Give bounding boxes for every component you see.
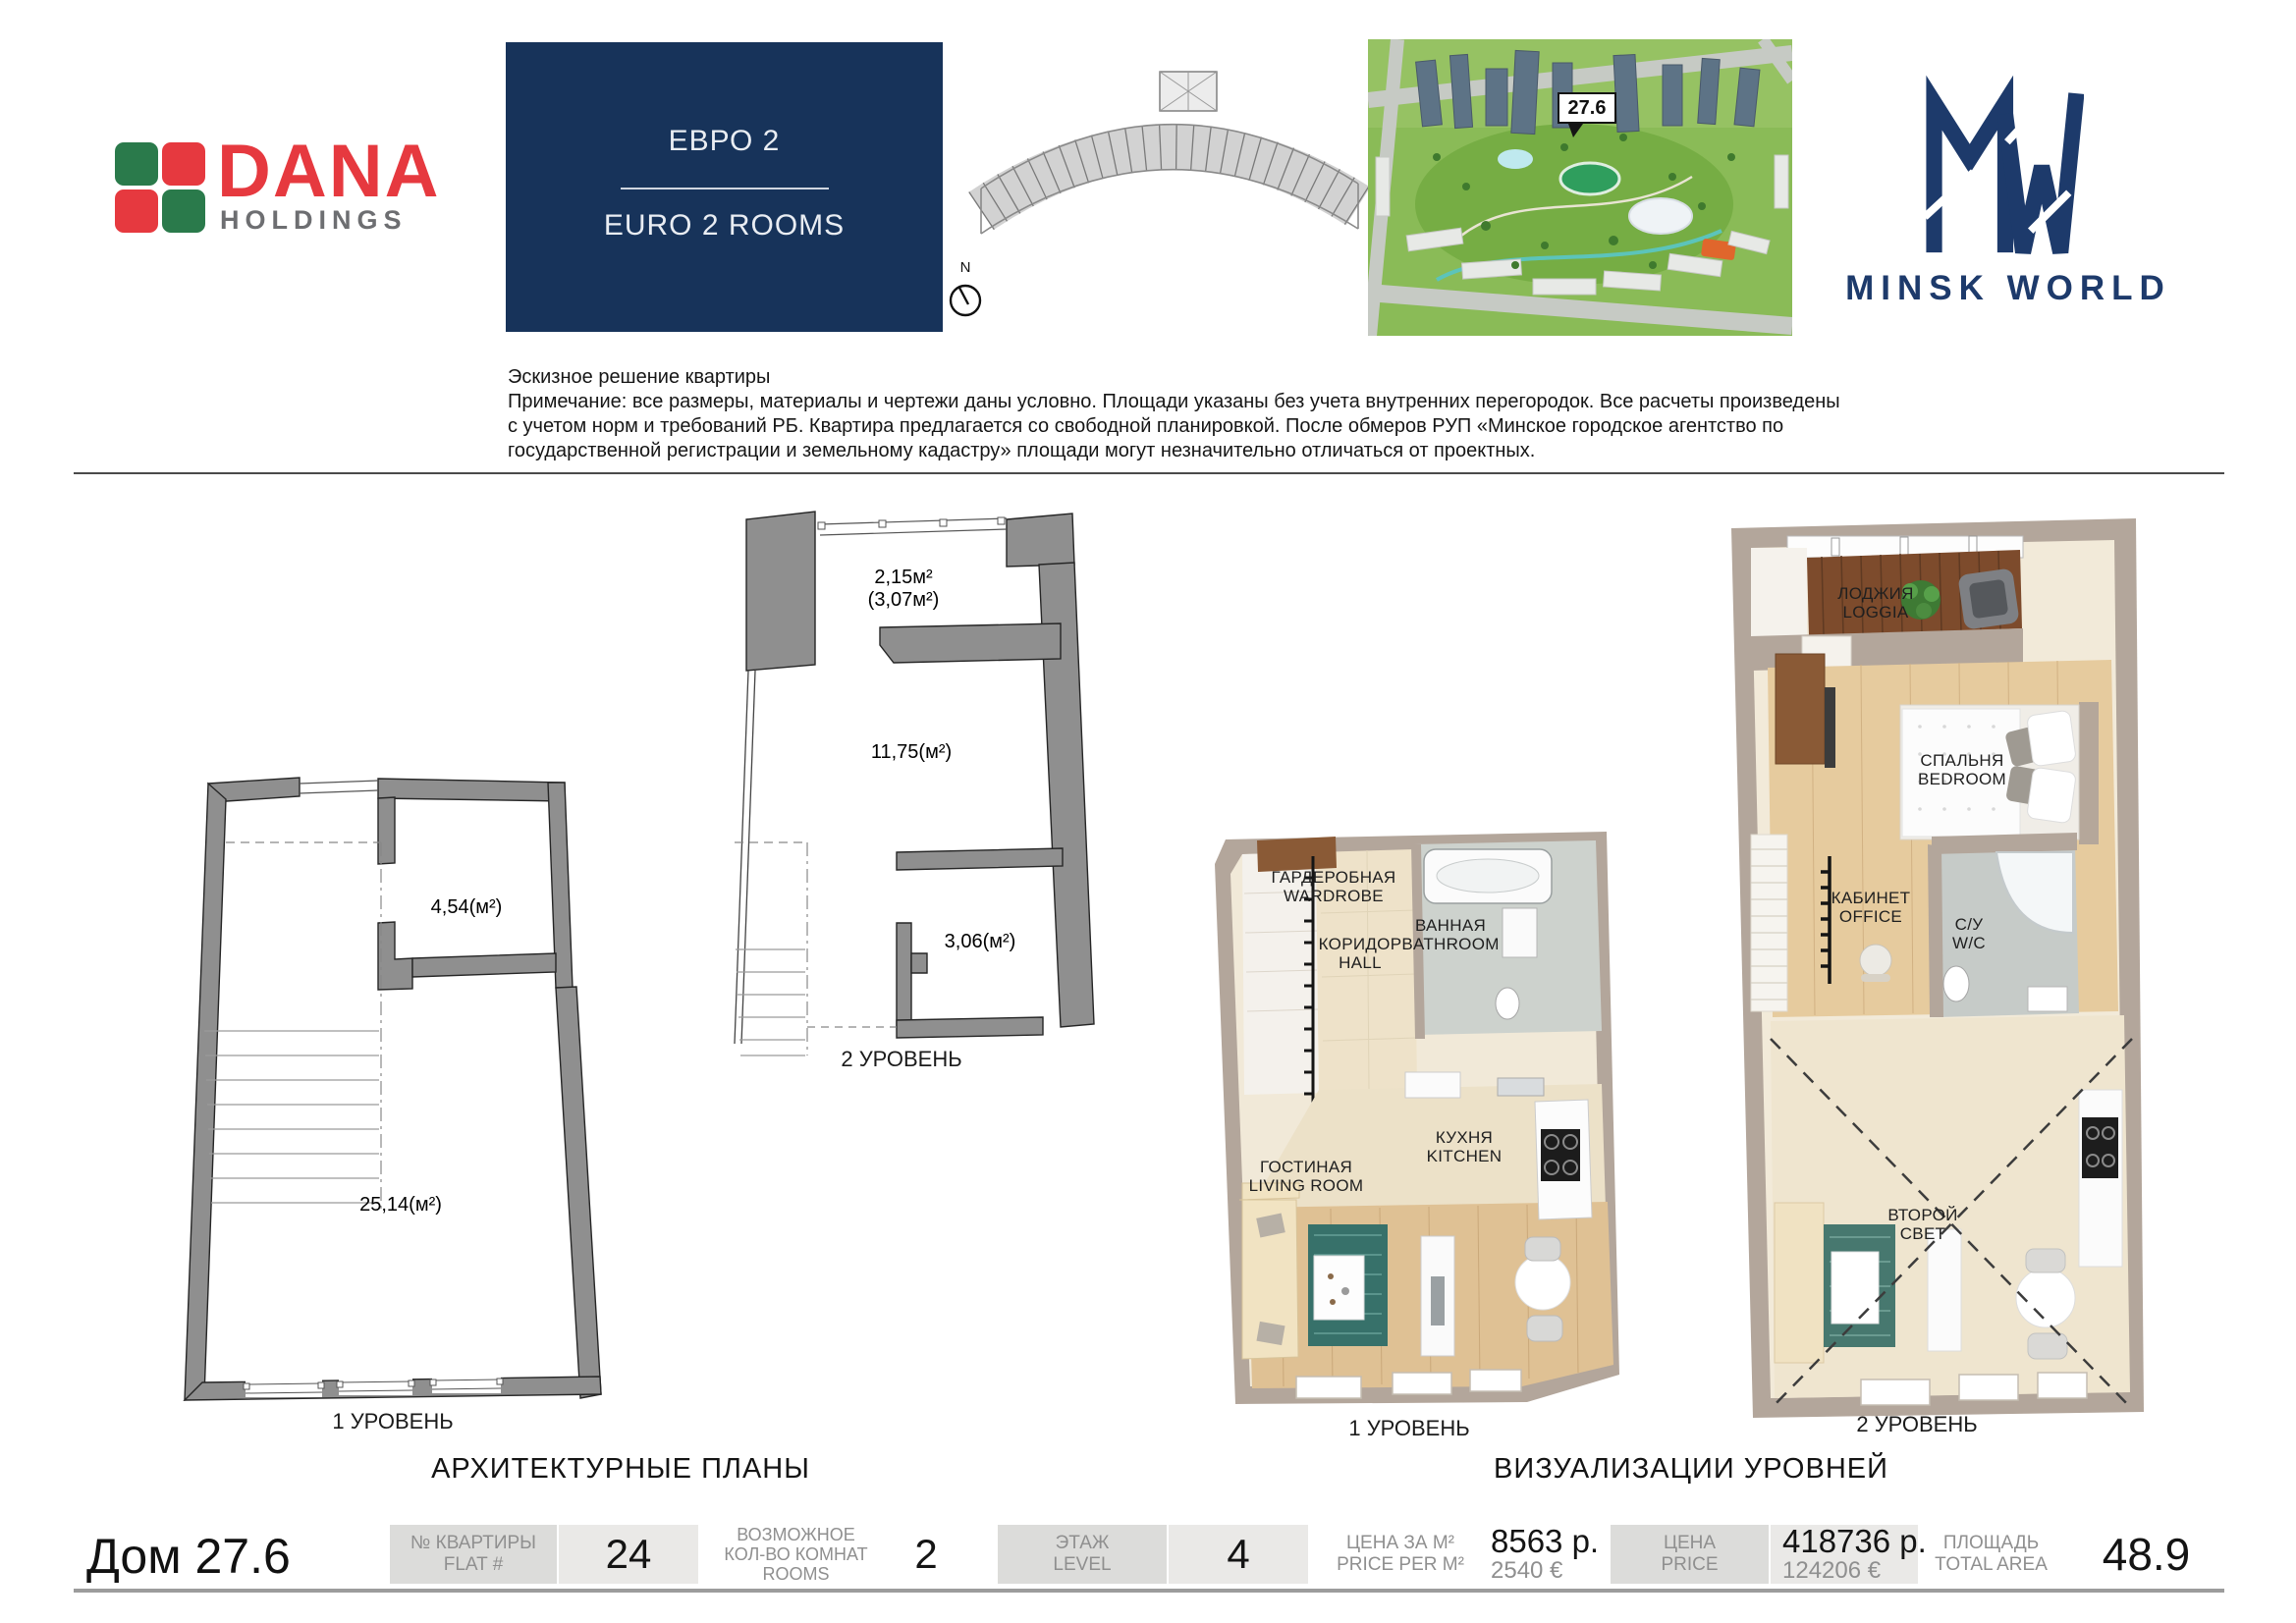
flat-datasheet: DANA HOLDINGS ЕВРО 2 EURO 2 ROOMS N <box>0 0 2296 1623</box>
logo-square-red <box>115 189 158 233</box>
disclaimer-line: Примечание: все размеры, материалы и чер… <box>508 390 1840 414</box>
dana-holdings-logo-icon <box>115 142 206 233</box>
logo-square-green <box>162 189 205 233</box>
plan-level2-caption: 2 УРОВЕНЬ <box>841 1047 961 1072</box>
desk-chair <box>1860 945 1891 976</box>
area-label-living: 25,14(м²) <box>359 1194 442 1217</box>
room-label-bathroom: ВАННАЯ BATHROOM <box>1401 916 1499 953</box>
room-label-ru: ЛОДЖИЯ <box>1837 584 1914 603</box>
room-label-en: WARDROBE <box>1272 887 1396 905</box>
building-floor-schematic <box>967 64 1370 250</box>
price-label-box: ЦЕНА PRICE <box>1611 1525 1769 1584</box>
toilet <box>1943 966 1969 1001</box>
room-label-ru: ГАРДЕРОБНАЯ <box>1272 868 1396 887</box>
minsk-world-monogram-icon <box>1925 71 2084 261</box>
viz-level2-caption: 2 УРОВЕНЬ <box>1856 1412 1977 1437</box>
room-label-en: OFFICE <box>1831 907 1911 926</box>
flat-number-value: 24 <box>606 1531 652 1578</box>
room-label-wc: С/У W/C <box>1952 915 1986 952</box>
compass-icon <box>941 273 1004 332</box>
price-value-byn: 418736 р. <box>1782 1525 1927 1558</box>
plans-section-title: АРХИТЕКТУРНЫЕ ПЛАНЫ <box>431 1453 810 1486</box>
room-label-second-light: ВТОРОЙ СВЕТ <box>1887 1206 1957 1243</box>
wardrobe-furniture <box>1257 837 1337 872</box>
price-per-m2-value-box: 8563 р. 2540 € <box>1491 1525 1609 1584</box>
wall <box>746 512 815 671</box>
area-label-wc: 3,06(м²) <box>945 931 1016 953</box>
area-value: 48.9 <box>2103 1528 2191 1581</box>
pillow <box>2027 767 2077 824</box>
price-label-en: PRICE <box>1661 1554 1718 1576</box>
ice-rink <box>1629 198 1692 234</box>
wc-sink <box>2028 987 2067 1011</box>
flat-type-en: EURO 2 ROOMS <box>604 209 845 243</box>
house-number: Дом 27.6 <box>86 1528 291 1585</box>
room-label-en: СВЕТ <box>1887 1224 1957 1243</box>
headboard <box>2079 702 2099 844</box>
dining-table <box>1515 1255 1570 1310</box>
room-label-ru: ВТОРОЙ <box>1887 1206 1957 1224</box>
room-label-en: HALL <box>1319 953 1402 972</box>
price-per-m2-label-box: ЦЕНА ЗА М² PRICE PER M² <box>1312 1525 1489 1584</box>
dana-logo-subword: HOLDINGS <box>220 205 408 236</box>
callout-pointer <box>1568 124 1583 137</box>
flat-number-value-box: 24 <box>559 1525 698 1584</box>
room-label-living: ГОСТИНАЯ LIVING ROOM <box>1249 1158 1364 1195</box>
level-label-box: ЭТАЖ LEVEL <box>998 1525 1167 1584</box>
pond <box>1498 149 1533 169</box>
disclaimer-line: Эскизное решение квартиры <box>508 365 1840 390</box>
building-number-callout: 27.6 <box>1558 92 1616 124</box>
flat-label-en: FLAT # <box>444 1554 504 1576</box>
coffee-table <box>1314 1256 1364 1320</box>
bedroom-wardrobe <box>1776 654 1825 764</box>
area-label-balcony: 2,15м² <box>874 567 932 589</box>
flat-type-title-box: ЕВРО 2 EURO 2 ROOMS <box>506 42 943 332</box>
sports-field <box>1560 163 1619 194</box>
room-label-ru: КУХНЯ <box>1427 1128 1503 1147</box>
viz-level1-caption: 1 УРОВЕНЬ <box>1348 1416 1469 1441</box>
room-label-bedroom: СПАЛЬНЯ BEDROOM <box>1918 751 2006 788</box>
disclaimer-text: Эскизное решение квартиры Примечание: вс… <box>508 365 1840 463</box>
viz-level2 <box>1714 501 2151 1424</box>
room-label-ru: ВАННАЯ <box>1401 916 1499 935</box>
room-label-ru: ГОСТИНАЯ <box>1249 1158 1364 1176</box>
viz-level1 <box>1203 795 1625 1443</box>
stairs-white <box>1751 835 1787 1011</box>
disclaimer-line: государственной регистрации и земельному… <box>508 439 1840 463</box>
flat-type-ru: ЕВРО 2 <box>669 125 781 158</box>
area-label-wardrobe: 4,54(м²) <box>431 896 503 919</box>
room-label-office: КАБИНЕТ OFFICE <box>1831 889 1911 926</box>
rooms-label-ru1: ВОЗМОЖНОЕ <box>737 1525 855 1544</box>
price-value-eur: 124206 € <box>1782 1558 1881 1584</box>
room-label-en: W/C <box>1952 934 1986 952</box>
kitchen-sink <box>1498 1078 1544 1096</box>
price-label-ru: ЦЕНА <box>1664 1533 1716 1554</box>
level-label-en: LEVEL <box>1053 1554 1111 1576</box>
rooms-value-box: 2 <box>892 1525 960 1584</box>
level-value-box: 4 <box>1169 1525 1308 1584</box>
area-label-balcony-alt: (3,07м²) <box>868 589 940 612</box>
minsk-world-wordmark: MINSK WORLD <box>1825 269 2192 308</box>
ppm-value-eur: 2540 € <box>1491 1558 1562 1584</box>
ppm-label-en: PRICE PER M² <box>1337 1554 1464 1576</box>
header-divider <box>74 472 2224 474</box>
ppm-label-ru: ЦЕНА ЗА М² <box>1346 1533 1454 1554</box>
area-label-box: ПЛОЩАДЬ TOTAL AREA <box>1920 1525 2062 1584</box>
chair <box>1525 1237 1560 1261</box>
room-label-en: LOGGIA <box>1837 603 1914 622</box>
title-divider <box>621 188 829 189</box>
room-label-hall: КОРИДОР HALL <box>1319 935 1402 972</box>
rooms-label-ru2: КОЛ-ВО КОМНАТ <box>724 1544 867 1564</box>
room-label-wardrobe: ГАРДЕРОБНАЯ WARDROBE <box>1272 868 1396 905</box>
area-label-room: 11,75(м²) <box>871 741 952 764</box>
area-label-en: TOTAL AREA <box>1935 1554 2048 1576</box>
disclaimer-line: с учетом норм и требований РБ. Квартира … <box>508 414 1840 439</box>
tv-panel <box>1825 687 1835 768</box>
room-label-en: BATHROOM <box>1401 935 1499 953</box>
dana-logo-wordmark: DANA <box>217 137 441 206</box>
viz-section-title: ВИЗУАЛИЗАЦИИ УРОВНЕЙ <box>1494 1453 1888 1486</box>
room-label-ru: С/У <box>1952 915 1986 934</box>
logo-square-green <box>115 142 158 186</box>
plan-level1-caption: 1 УРОВЕНЬ <box>332 1409 453 1434</box>
rooms-label-en: ROOMS <box>762 1564 829 1584</box>
flat-label-ru: № КВАРТИРЫ <box>410 1533 536 1554</box>
room-label-ru: КОРИДОР <box>1319 935 1402 953</box>
area-value-box: 48.9 <box>2090 1525 2203 1584</box>
ppm-value-byn: 8563 р. <box>1491 1525 1599 1558</box>
toilet <box>1496 988 1519 1019</box>
rooms-value: 2 <box>914 1531 937 1578</box>
chair <box>1527 1316 1562 1341</box>
room-label-en: LIVING ROOM <box>1249 1176 1364 1195</box>
level-label-ru: ЭТАЖ <box>1056 1533 1110 1554</box>
bath-cabinet <box>1503 908 1537 957</box>
aerial-site-photo <box>1368 39 1792 336</box>
stove-below <box>2082 1117 2118 1178</box>
room-label-kitchen: КУХНЯ KITCHEN <box>1427 1128 1503 1165</box>
footer-divider <box>74 1589 2224 1593</box>
level-value: 4 <box>1227 1531 1249 1578</box>
room-label-loggia: ЛОДЖИЯ LOGGIA <box>1837 584 1914 622</box>
room-label-ru: КАБИНЕТ <box>1831 889 1911 907</box>
room-label-en: BEDROOM <box>1918 770 2006 788</box>
sofa-below <box>1775 1203 1824 1363</box>
flat-number-label-box: № КВАРТИРЫ FLAT # <box>390 1525 557 1584</box>
price-value-box: 418736 р. 124206 € <box>1771 1525 1918 1584</box>
plan-level1 <box>147 766 609 1424</box>
rooms-label-box: ВОЗМОЖНОЕ КОЛ-ВО КОМНАТ ROOMS <box>700 1525 892 1584</box>
area-label-ru: ПЛОЩАДЬ <box>1943 1533 2039 1554</box>
room-label-ru: СПАЛЬНЯ <box>1918 751 2006 770</box>
logo-square-red <box>162 142 205 186</box>
pillow <box>2027 710 2077 767</box>
room-label-en: KITCHEN <box>1427 1147 1503 1165</box>
